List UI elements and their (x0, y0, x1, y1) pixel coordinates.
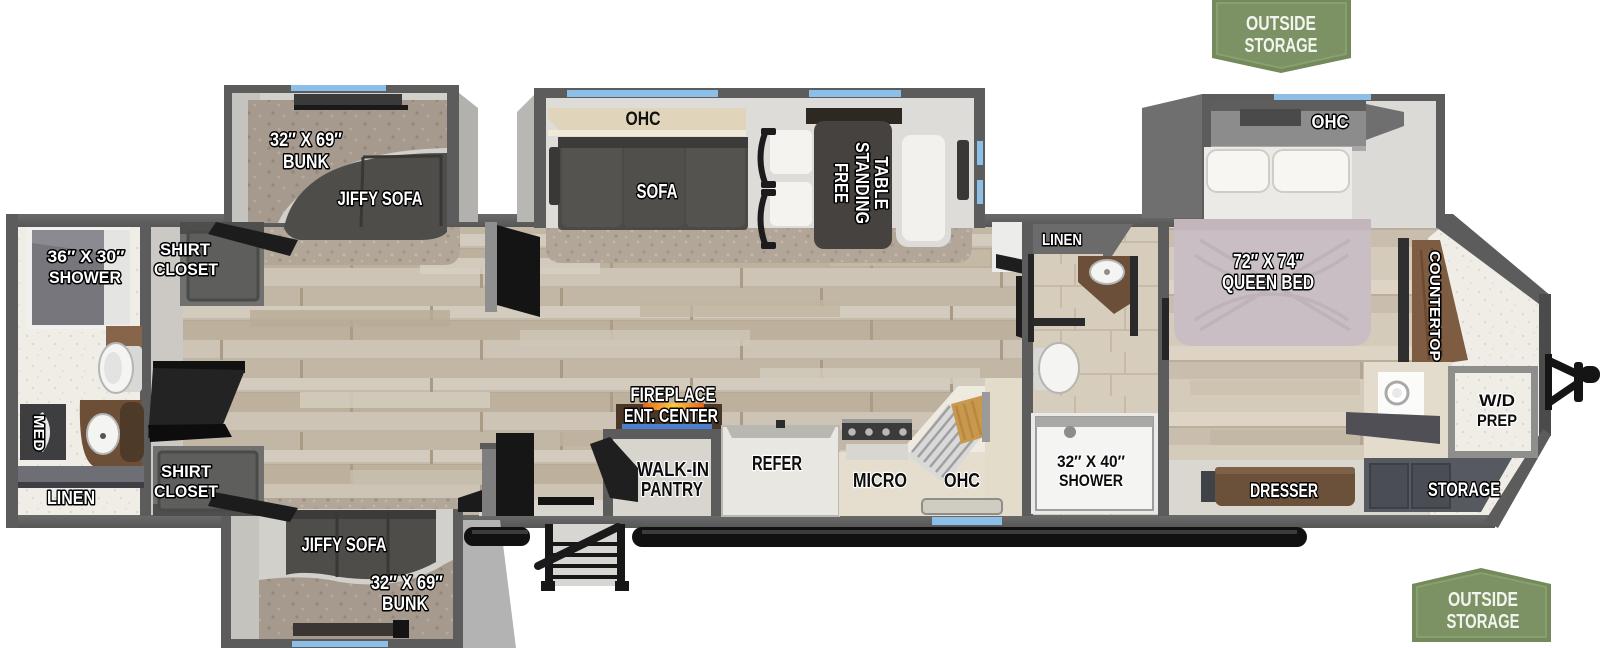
svg-text:32″ X 69″: 32″ X 69″ (371, 573, 443, 594)
svg-text:TABLE: TABLE (871, 157, 891, 210)
svg-text:OUTSIDE: OUTSIDE (1246, 13, 1316, 35)
svg-text:FIREPLACE: FIREPLACE (631, 385, 716, 406)
svg-text:BUNK: BUNK (382, 594, 428, 615)
svg-text:36″ X 30″: 36″ X 30″ (48, 247, 125, 266)
svg-text:CLOSET: CLOSET (154, 260, 219, 279)
svg-text:BUNK: BUNK (283, 152, 329, 173)
svg-text:JIFFY SOFA: JIFFY SOFA (338, 189, 423, 210)
svg-text:REFER: REFER (752, 453, 802, 475)
svg-text:MICRO: MICRO (853, 470, 907, 492)
svg-text:W/D: W/D (1479, 391, 1515, 410)
svg-text:SHIRT: SHIRT (160, 240, 211, 259)
svg-text:WALK-IN: WALK-IN (637, 459, 709, 481)
svg-text:QUEEN BED: QUEEN BED (1222, 272, 1314, 294)
svg-text:LINEN: LINEN (47, 488, 95, 508)
svg-text:OHC: OHC (1312, 112, 1349, 132)
svg-text:72″ X 74″: 72″ X 74″ (1233, 251, 1303, 273)
svg-text:COUNTERTOP: COUNTERTOP (1426, 251, 1443, 361)
svg-text:32″ X 40″: 32″ X 40″ (1057, 452, 1125, 471)
svg-text:STORAGE: STORAGE (1428, 480, 1500, 501)
svg-text:STORAGE: STORAGE (1245, 35, 1318, 57)
svg-text:32″ X 69″: 32″ X 69″ (270, 130, 342, 151)
svg-text:FREE: FREE (831, 163, 851, 203)
svg-text:MED: MED (30, 415, 47, 451)
svg-text:SOFA: SOFA (637, 181, 678, 203)
svg-text:SHIRT: SHIRT (161, 462, 212, 481)
svg-text:CLOSET: CLOSET (154, 482, 219, 501)
svg-text:STANDING: STANDING (852, 142, 872, 224)
svg-text:ENT. CENTER: ENT. CENTER (624, 406, 718, 426)
svg-text:OUTSIDE: OUTSIDE (1448, 589, 1518, 611)
svg-text:DRESSER: DRESSER (1250, 481, 1318, 502)
svg-text:SHOWER: SHOWER (1059, 471, 1123, 490)
svg-text:PANTRY: PANTRY (641, 479, 704, 501)
svg-text:OHC: OHC (626, 109, 661, 130)
svg-text:SHOWER: SHOWER (49, 268, 121, 287)
svg-text:STORAGE: STORAGE (1447, 611, 1520, 633)
svg-text:JIFFY SOFA: JIFFY SOFA (302, 535, 387, 556)
svg-text:LINEN: LINEN (1042, 232, 1082, 249)
svg-text:OHC: OHC (944, 470, 980, 492)
svg-text:PREP: PREP (1477, 411, 1517, 430)
